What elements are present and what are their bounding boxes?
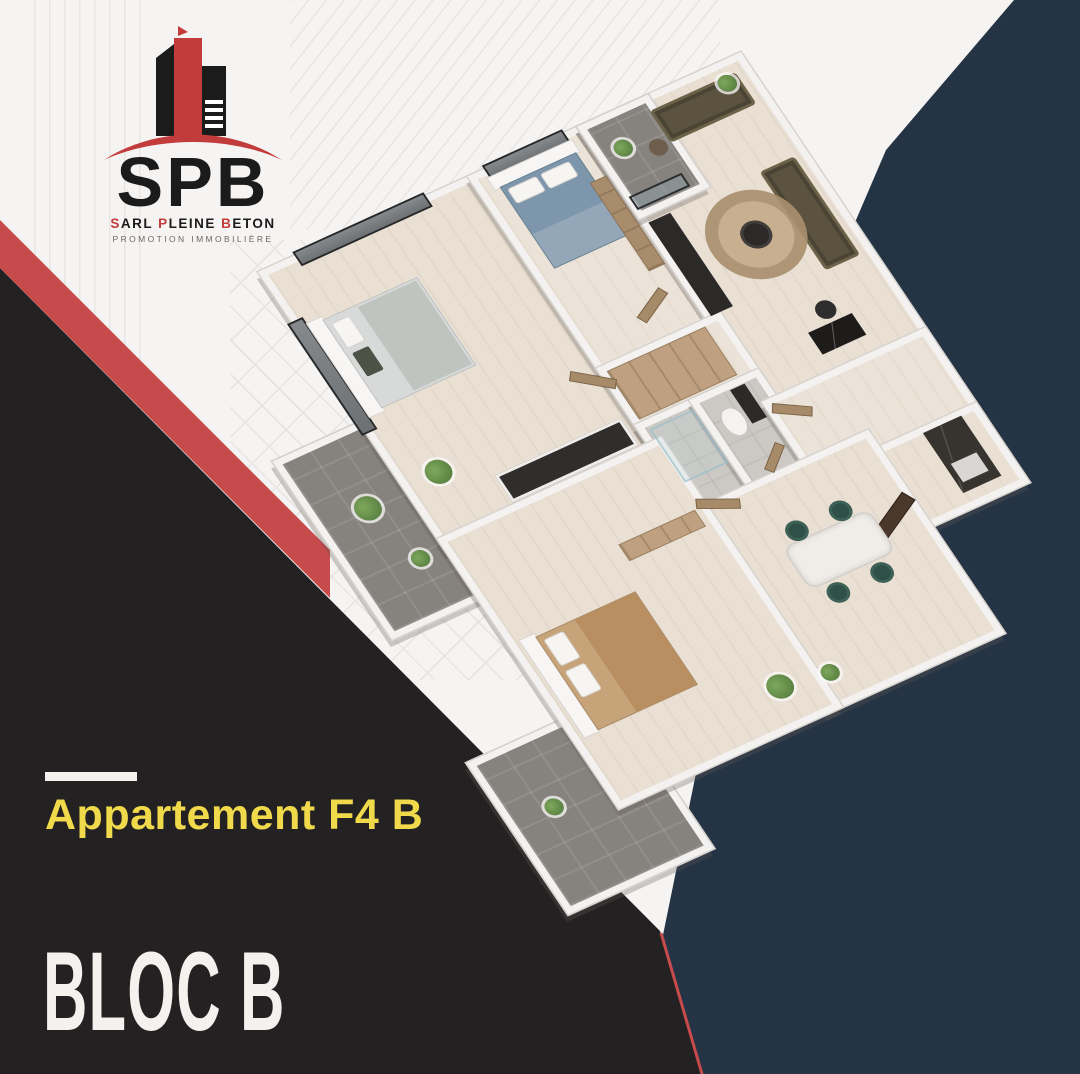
building-flag bbox=[178, 26, 188, 38]
brand-name: SPB bbox=[86, 152, 300, 214]
door-icon bbox=[696, 499, 740, 508]
tagline-part: S bbox=[110, 216, 121, 231]
brand-subtitle: PROMOTION IMMOBILIÈRE bbox=[86, 234, 300, 244]
building-window-stripe bbox=[205, 108, 223, 112]
tagline-part: P bbox=[158, 216, 169, 231]
apartment-title: Appartement F4 B bbox=[45, 791, 423, 840]
building-window-stripe bbox=[205, 124, 223, 128]
block-title: BLOC B bbox=[43, 928, 286, 1056]
tagline-part: ETON bbox=[232, 216, 275, 231]
building-tower-left bbox=[156, 44, 174, 136]
tagline-part: LEINE bbox=[169, 216, 222, 231]
spb-logo: SPB SARL PLEINE BETON PROMOTION IMMOBILI… bbox=[86, 24, 300, 244]
tagline-part: ARL bbox=[121, 216, 158, 231]
building-window-stripe bbox=[205, 100, 223, 104]
building-window-stripe bbox=[205, 116, 223, 120]
brand-tagline: SARL PLEINE BETON bbox=[86, 216, 300, 231]
tagline-part: B bbox=[221, 216, 232, 231]
title-underline bbox=[45, 772, 137, 781]
poster-canvas: SPB SARL PLEINE BETON PROMOTION IMMOBILI… bbox=[0, 0, 1080, 1074]
building-tower-center bbox=[174, 38, 202, 136]
